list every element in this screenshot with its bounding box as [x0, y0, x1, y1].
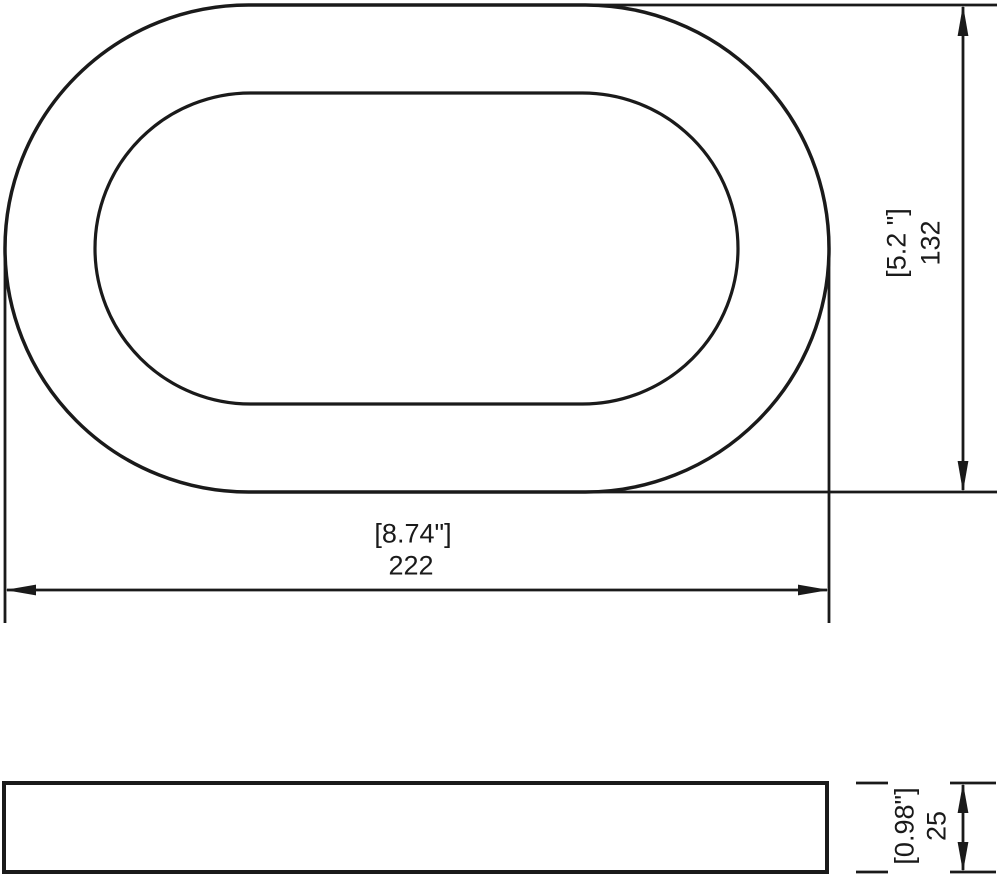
thickness-dim-arrow-up-icon	[958, 783, 969, 813]
inner-oval-outline	[95, 93, 738, 404]
drawing-linework	[0, 0, 1000, 877]
height-dim-inches-label: [5.2 "]	[884, 208, 911, 278]
thickness-dim-arrow-down-icon	[958, 842, 969, 872]
width-dim-arrow-right-icon	[798, 585, 829, 596]
width-dim-arrow-left-icon	[5, 585, 36, 596]
outer-oval-outline	[5, 5, 829, 492]
thickness-dim-inches-label: [0.98"]	[892, 787, 919, 864]
side-view-rectangle	[4, 783, 827, 872]
height-dim-arrow-up-icon	[958, 5, 969, 36]
width-dim-mm-label: 222	[388, 553, 433, 580]
height-dim-mm-label: 132	[918, 220, 945, 265]
width-dim-inches-label: [8.74"]	[374, 521, 451, 548]
height-dim-arrow-down-icon	[958, 461, 969, 492]
thickness-dim-mm-label: 25	[924, 811, 951, 841]
technical-drawing: [8.74"] 222 [5.2 "] 132 [0.98"] 25	[0, 0, 1000, 877]
